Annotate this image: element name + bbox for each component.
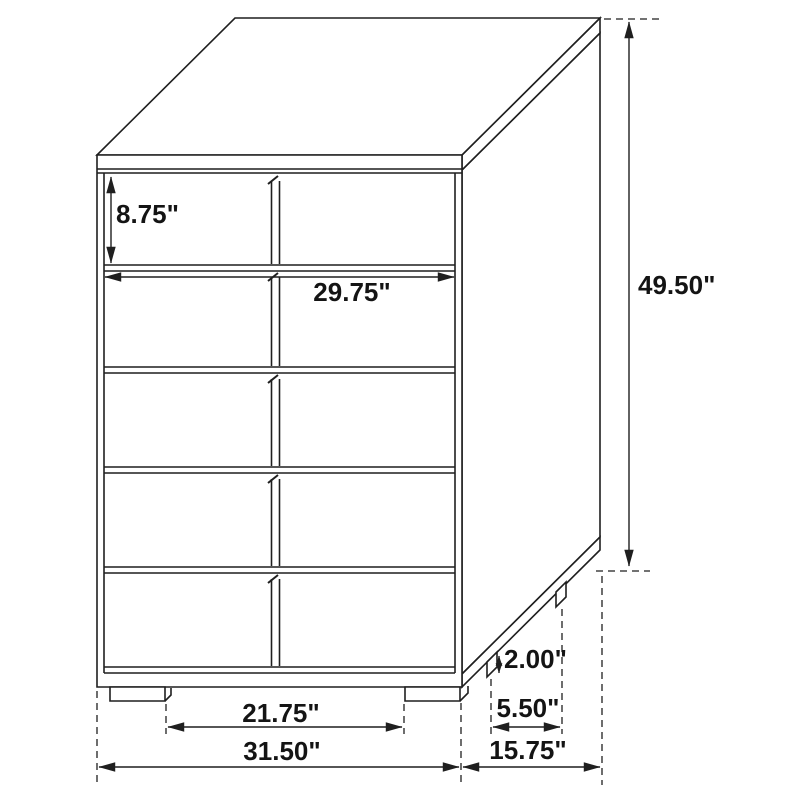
chest-line-drawing	[0, 0, 800, 800]
dim-label-foot-height: 2.00"	[504, 646, 567, 673]
dim-label-foot-depth-spacing: 5.50"	[497, 695, 560, 722]
dim-label-overall-height: 49.50"	[638, 272, 715, 299]
dim-label-overall-depth: 15.75"	[489, 737, 566, 764]
cabinet-body	[97, 18, 600, 701]
dim-label-overall-width: 31.50"	[243, 738, 320, 765]
dim-label-foot-width-spacing: 21.75"	[242, 700, 319, 727]
diagram-canvas: 8.75" 29.75" 49.50" 2.00" 5.50" 21.75" 3…	[0, 0, 800, 800]
dim-label-top-drawer-height: 8.75"	[116, 201, 179, 228]
dim-label-drawer-width: 29.75"	[313, 279, 390, 306]
